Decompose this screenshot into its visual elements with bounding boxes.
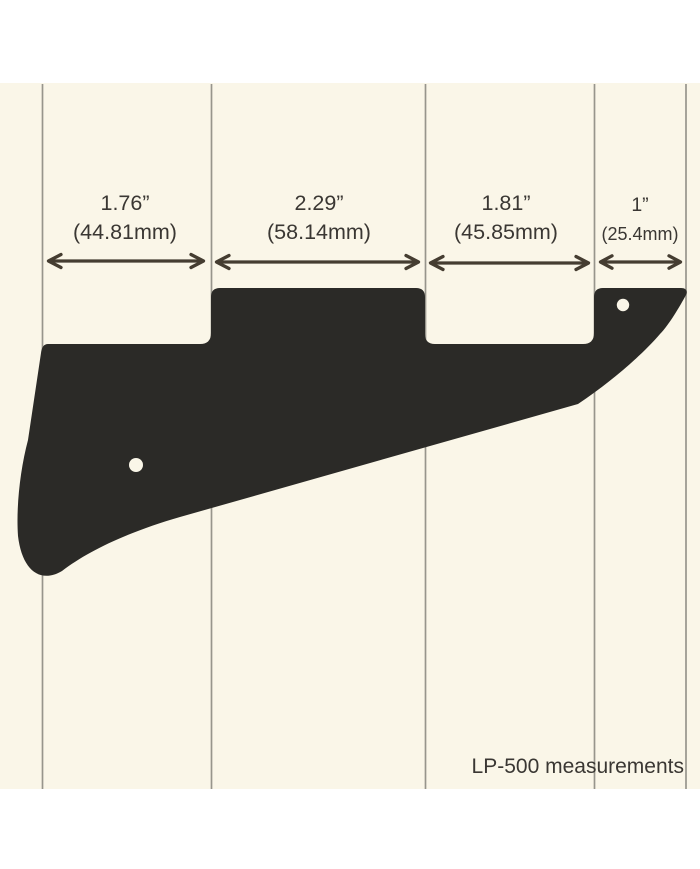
dimension-arrow-3	[431, 257, 589, 270]
dimension-arrow-1	[49, 255, 204, 268]
dimension-label-3: 1.81” (45.85mm)	[454, 189, 558, 247]
pickguard-shape	[17, 288, 686, 576]
dimension-label-4-mm: (25.4mm)	[601, 220, 678, 249]
diagram-title: LP-500 measurements	[472, 755, 684, 779]
dimension-label-1: 1.76” (44.81mm)	[73, 189, 177, 247]
dimension-label-2-inches: 2.29”	[267, 189, 371, 218]
dimension-label-2-mm: (58.14mm)	[267, 218, 371, 247]
dimension-label-2: 2.29” (58.14mm)	[267, 189, 371, 247]
dimension-label-3-inches: 1.81”	[454, 189, 558, 218]
mounting-hole-left	[129, 458, 143, 472]
dimension-arrow-2	[217, 256, 419, 269]
pickguard-measurement-diagram: 1.76” (44.81mm) 2.29” (58.14mm) 1.81” (4…	[0, 0, 700, 869]
dimension-label-4: 1” (25.4mm)	[601, 191, 678, 249]
dimension-label-4-inches: 1”	[601, 191, 678, 220]
diagram-layer	[0, 0, 700, 869]
dimension-arrows	[49, 255, 681, 270]
dimension-label-3-mm: (45.85mm)	[454, 218, 558, 247]
dimension-arrow-4	[601, 256, 681, 268]
dimension-label-1-inches: 1.76”	[73, 189, 177, 218]
mounting-hole-right	[617, 299, 629, 311]
dimension-label-1-mm: (44.81mm)	[73, 218, 177, 247]
